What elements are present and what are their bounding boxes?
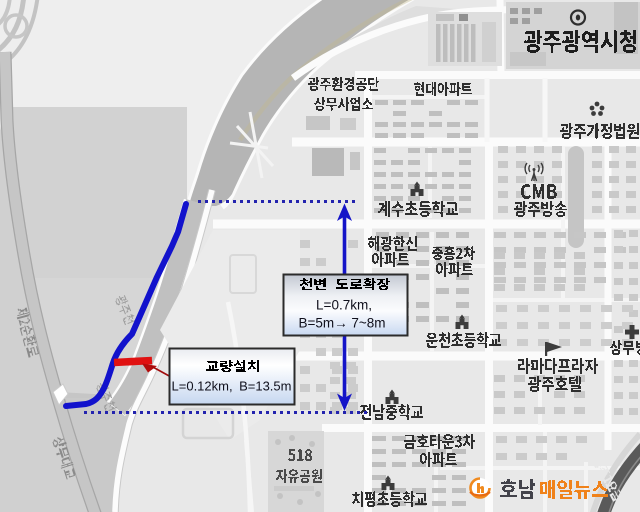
svg-text:L=0.7km,: L=0.7km, bbox=[316, 298, 372, 313]
svg-text:B=5m→ 7~8m: B=5m→ 7~8m bbox=[298, 316, 385, 331]
svg-text:L=0.12km, B=13.5m: L=0.12km, B=13.5m bbox=[172, 379, 292, 394]
